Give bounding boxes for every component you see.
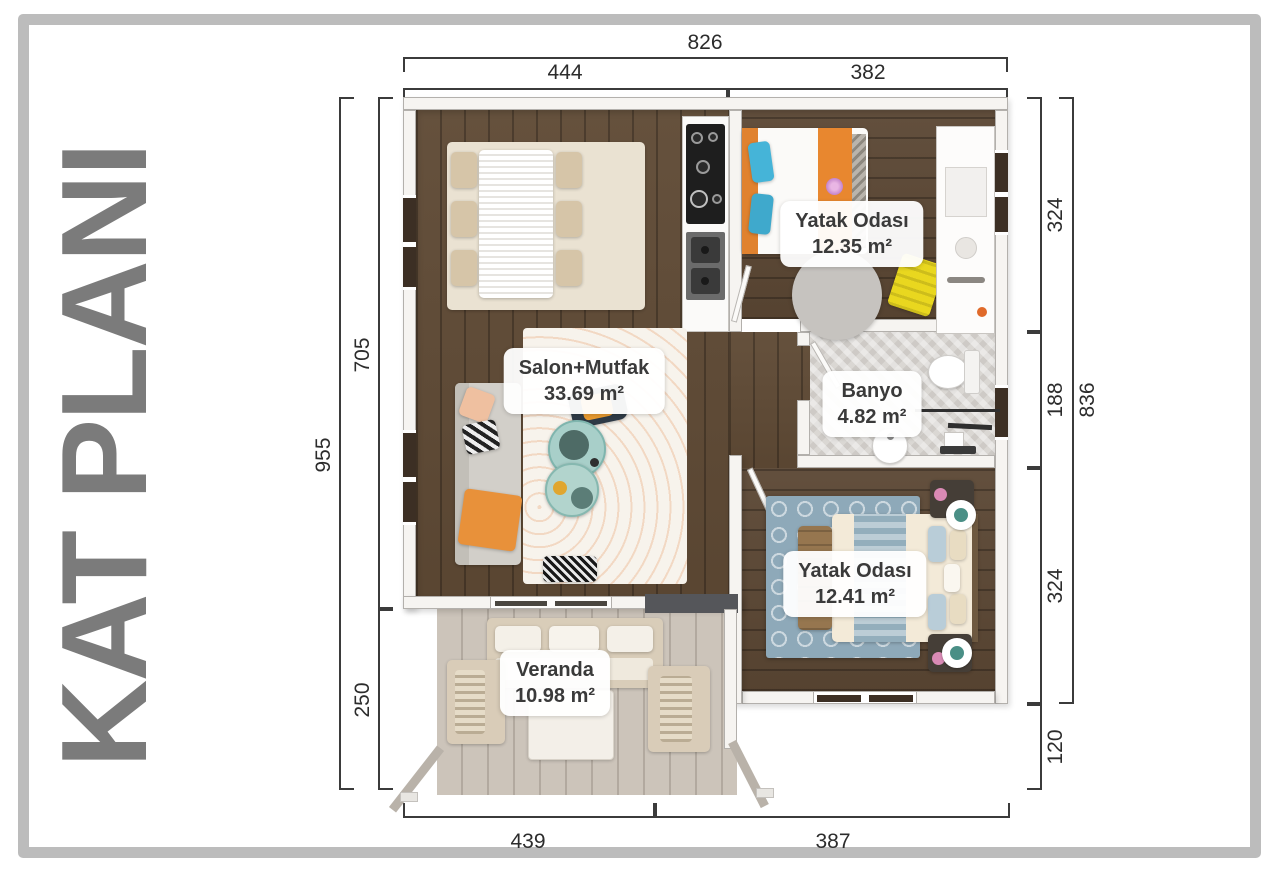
room-area: 12.41 m²: [798, 584, 911, 610]
nightstand-lamp: [942, 638, 972, 668]
dim-bottom-left-label: 439: [510, 830, 545, 854]
dim-left-lower-line: [378, 609, 380, 790]
shower-mat: [940, 446, 976, 454]
dining-chair: [451, 201, 477, 237]
dim-top-left-label: 444: [547, 61, 582, 85]
dim-right-middle-label: 188: [1044, 382, 1068, 417]
page-title: KAT PLANI: [34, 144, 174, 768]
dim-right-top-line: [1040, 97, 1042, 332]
bedroom1-wardrobe: [936, 126, 995, 334]
dining-chair: [451, 152, 477, 188]
dining-table: [479, 150, 553, 298]
room-label-veranda: Veranda 10.98 m²: [500, 650, 610, 716]
dim-left-lower-label: 250: [351, 682, 375, 717]
window-bathroom-right: [995, 385, 1008, 440]
dim-left-upper-label: 705: [351, 337, 375, 372]
dim-top-total-label: 826: [687, 31, 722, 55]
shower-partition: [915, 409, 1000, 412]
floor-plan-page: KAT PLANI 826 444 382 439 387 955 705 25…: [0, 0, 1280, 886]
dim-right-bottom-label: 120: [1044, 729, 1068, 764]
dim-right-top-label: 324: [1044, 197, 1068, 232]
coffee-table-small: [545, 463, 599, 517]
dim-top-total-line: [403, 57, 1008, 59]
window-bedroom2-bottom: [813, 691, 917, 704]
room-name: Banyo: [838, 378, 907, 404]
room-name: Yatak Odası: [798, 558, 911, 584]
room-label-bathroom: Banyo 4.82 m²: [823, 371, 922, 437]
room-label-living: Salon+Mutfak 33.69 m²: [504, 348, 665, 414]
room-area: 10.98 m²: [515, 683, 595, 709]
sofa-throw-orange: [457, 488, 522, 552]
outdoor-armchair-left: [447, 660, 505, 744]
wall-top: [403, 97, 1008, 110]
dining-chair: [556, 201, 582, 237]
dim-left-total-label: 955: [312, 437, 336, 472]
dim-top-left-line: [403, 88, 728, 90]
dim-right-bottom-line: [1040, 704, 1042, 790]
window-living-left-2: [403, 430, 416, 525]
dim-bottom-right-line: [655, 816, 1010, 818]
railing-cap-left: [400, 792, 418, 802]
room-area: 33.69 m²: [519, 381, 650, 407]
dining-chair: [556, 250, 582, 286]
stove-cooktop: [686, 124, 725, 224]
dim-left-total-line: [339, 97, 341, 790]
dim-top-right-label: 382: [850, 61, 885, 85]
room-name: Veranda: [515, 657, 595, 683]
dim-left-upper-line: [378, 97, 380, 609]
veranda-sliding-door: [490, 596, 612, 609]
toilet: [928, 355, 968, 389]
dim-right-lower-label: 324: [1044, 568, 1068, 603]
room-name: Salon+Mutfak: [519, 355, 650, 381]
room-name: Yatak Odası: [795, 208, 908, 234]
pouf-checkered: [543, 556, 597, 582]
window-bedroom1-right: [995, 150, 1008, 235]
dim-bottom-left-line: [403, 816, 655, 818]
dim-right-middle-line: [1040, 332, 1042, 468]
room-area: 4.82 m²: [838, 404, 907, 430]
dim-top-right-line: [728, 88, 1008, 90]
outdoor-armchair-right: [648, 666, 710, 752]
room-label-bedroom2: Yatak Odası 12.41 m²: [783, 551, 926, 617]
kitchen-sink: [686, 232, 725, 300]
room-label-bedroom1: Yatak Odası 12.35 m²: [780, 201, 923, 267]
nightstand-lamp: [946, 500, 976, 530]
wall-bath-left-top: [797, 332, 810, 346]
dining-chair: [451, 250, 477, 286]
toilet-tank: [964, 350, 980, 394]
dim-right-lower-line: [1040, 468, 1042, 704]
window-living-left-1: [403, 195, 416, 290]
dim-bottom-right-label: 387: [815, 830, 850, 854]
veranda-post: [724, 609, 737, 749]
wall-left: [403, 110, 416, 609]
dim-right-total-label: 836: [1076, 382, 1100, 417]
wall-bath-left-bottom: [797, 400, 810, 455]
dining-chair: [556, 152, 582, 188]
dim-right-total-line: [1072, 97, 1074, 704]
room-area: 12.35 m²: [795, 234, 908, 260]
railing-cap-right: [756, 788, 774, 798]
